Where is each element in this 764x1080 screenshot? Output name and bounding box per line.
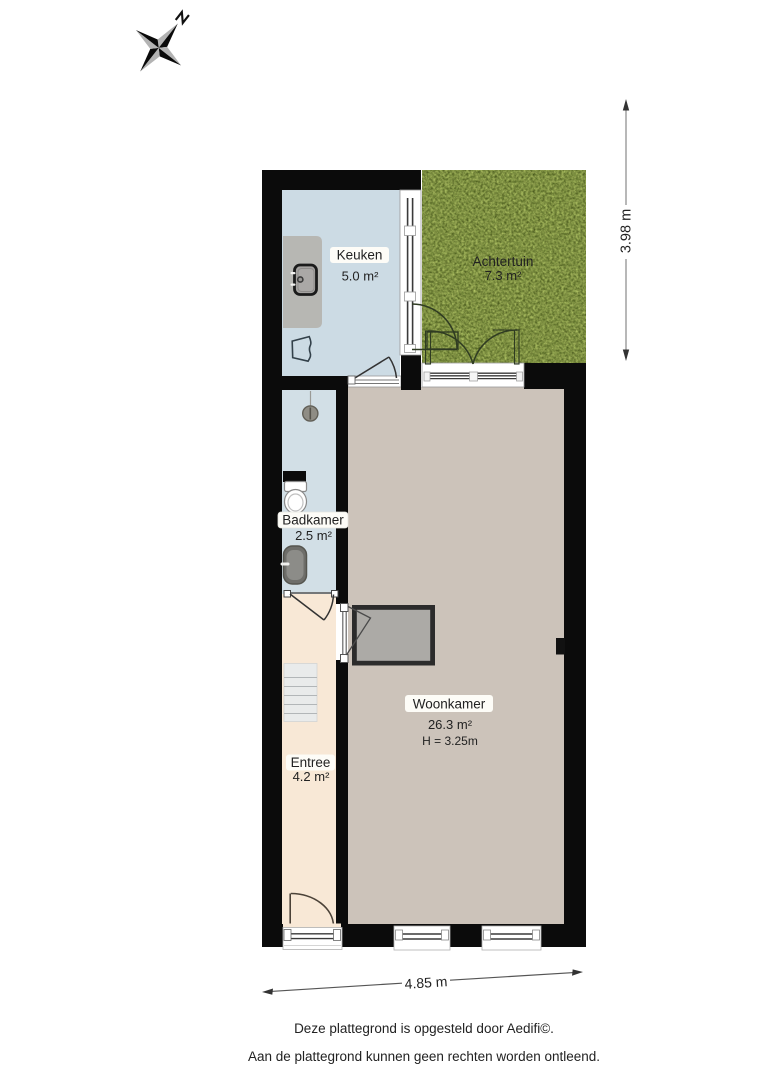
svg-text:Keuken: Keuken xyxy=(337,248,383,263)
svg-text:2.5 m²: 2.5 m² xyxy=(295,528,333,543)
svg-text:4.85 m: 4.85 m xyxy=(404,973,448,992)
svg-text:7.3 m²: 7.3 m² xyxy=(485,268,523,283)
svg-text:Entree: Entree xyxy=(291,755,331,770)
svg-text:5.0 m²: 5.0 m² xyxy=(342,269,380,284)
svg-text:Aan de plattegrond kunnen geen: Aan de plattegrond kunnen geen rechten w… xyxy=(248,1049,600,1064)
svg-text:H = 3.25m: H = 3.25m xyxy=(422,734,478,748)
svg-text:4.2 m²: 4.2 m² xyxy=(293,769,331,784)
svg-text:Achtertuin: Achtertuin xyxy=(473,254,534,269)
svg-text:3.98 m: 3.98 m xyxy=(619,209,635,253)
svg-text:Deze plattegrond is opgesteld: Deze plattegrond is opgesteld door Aedif… xyxy=(294,1021,554,1036)
svg-text:Woonkamer: Woonkamer xyxy=(413,697,486,712)
svg-text:Badkamer: Badkamer xyxy=(282,513,344,528)
svg-text:26.3 m²: 26.3 m² xyxy=(428,717,473,732)
